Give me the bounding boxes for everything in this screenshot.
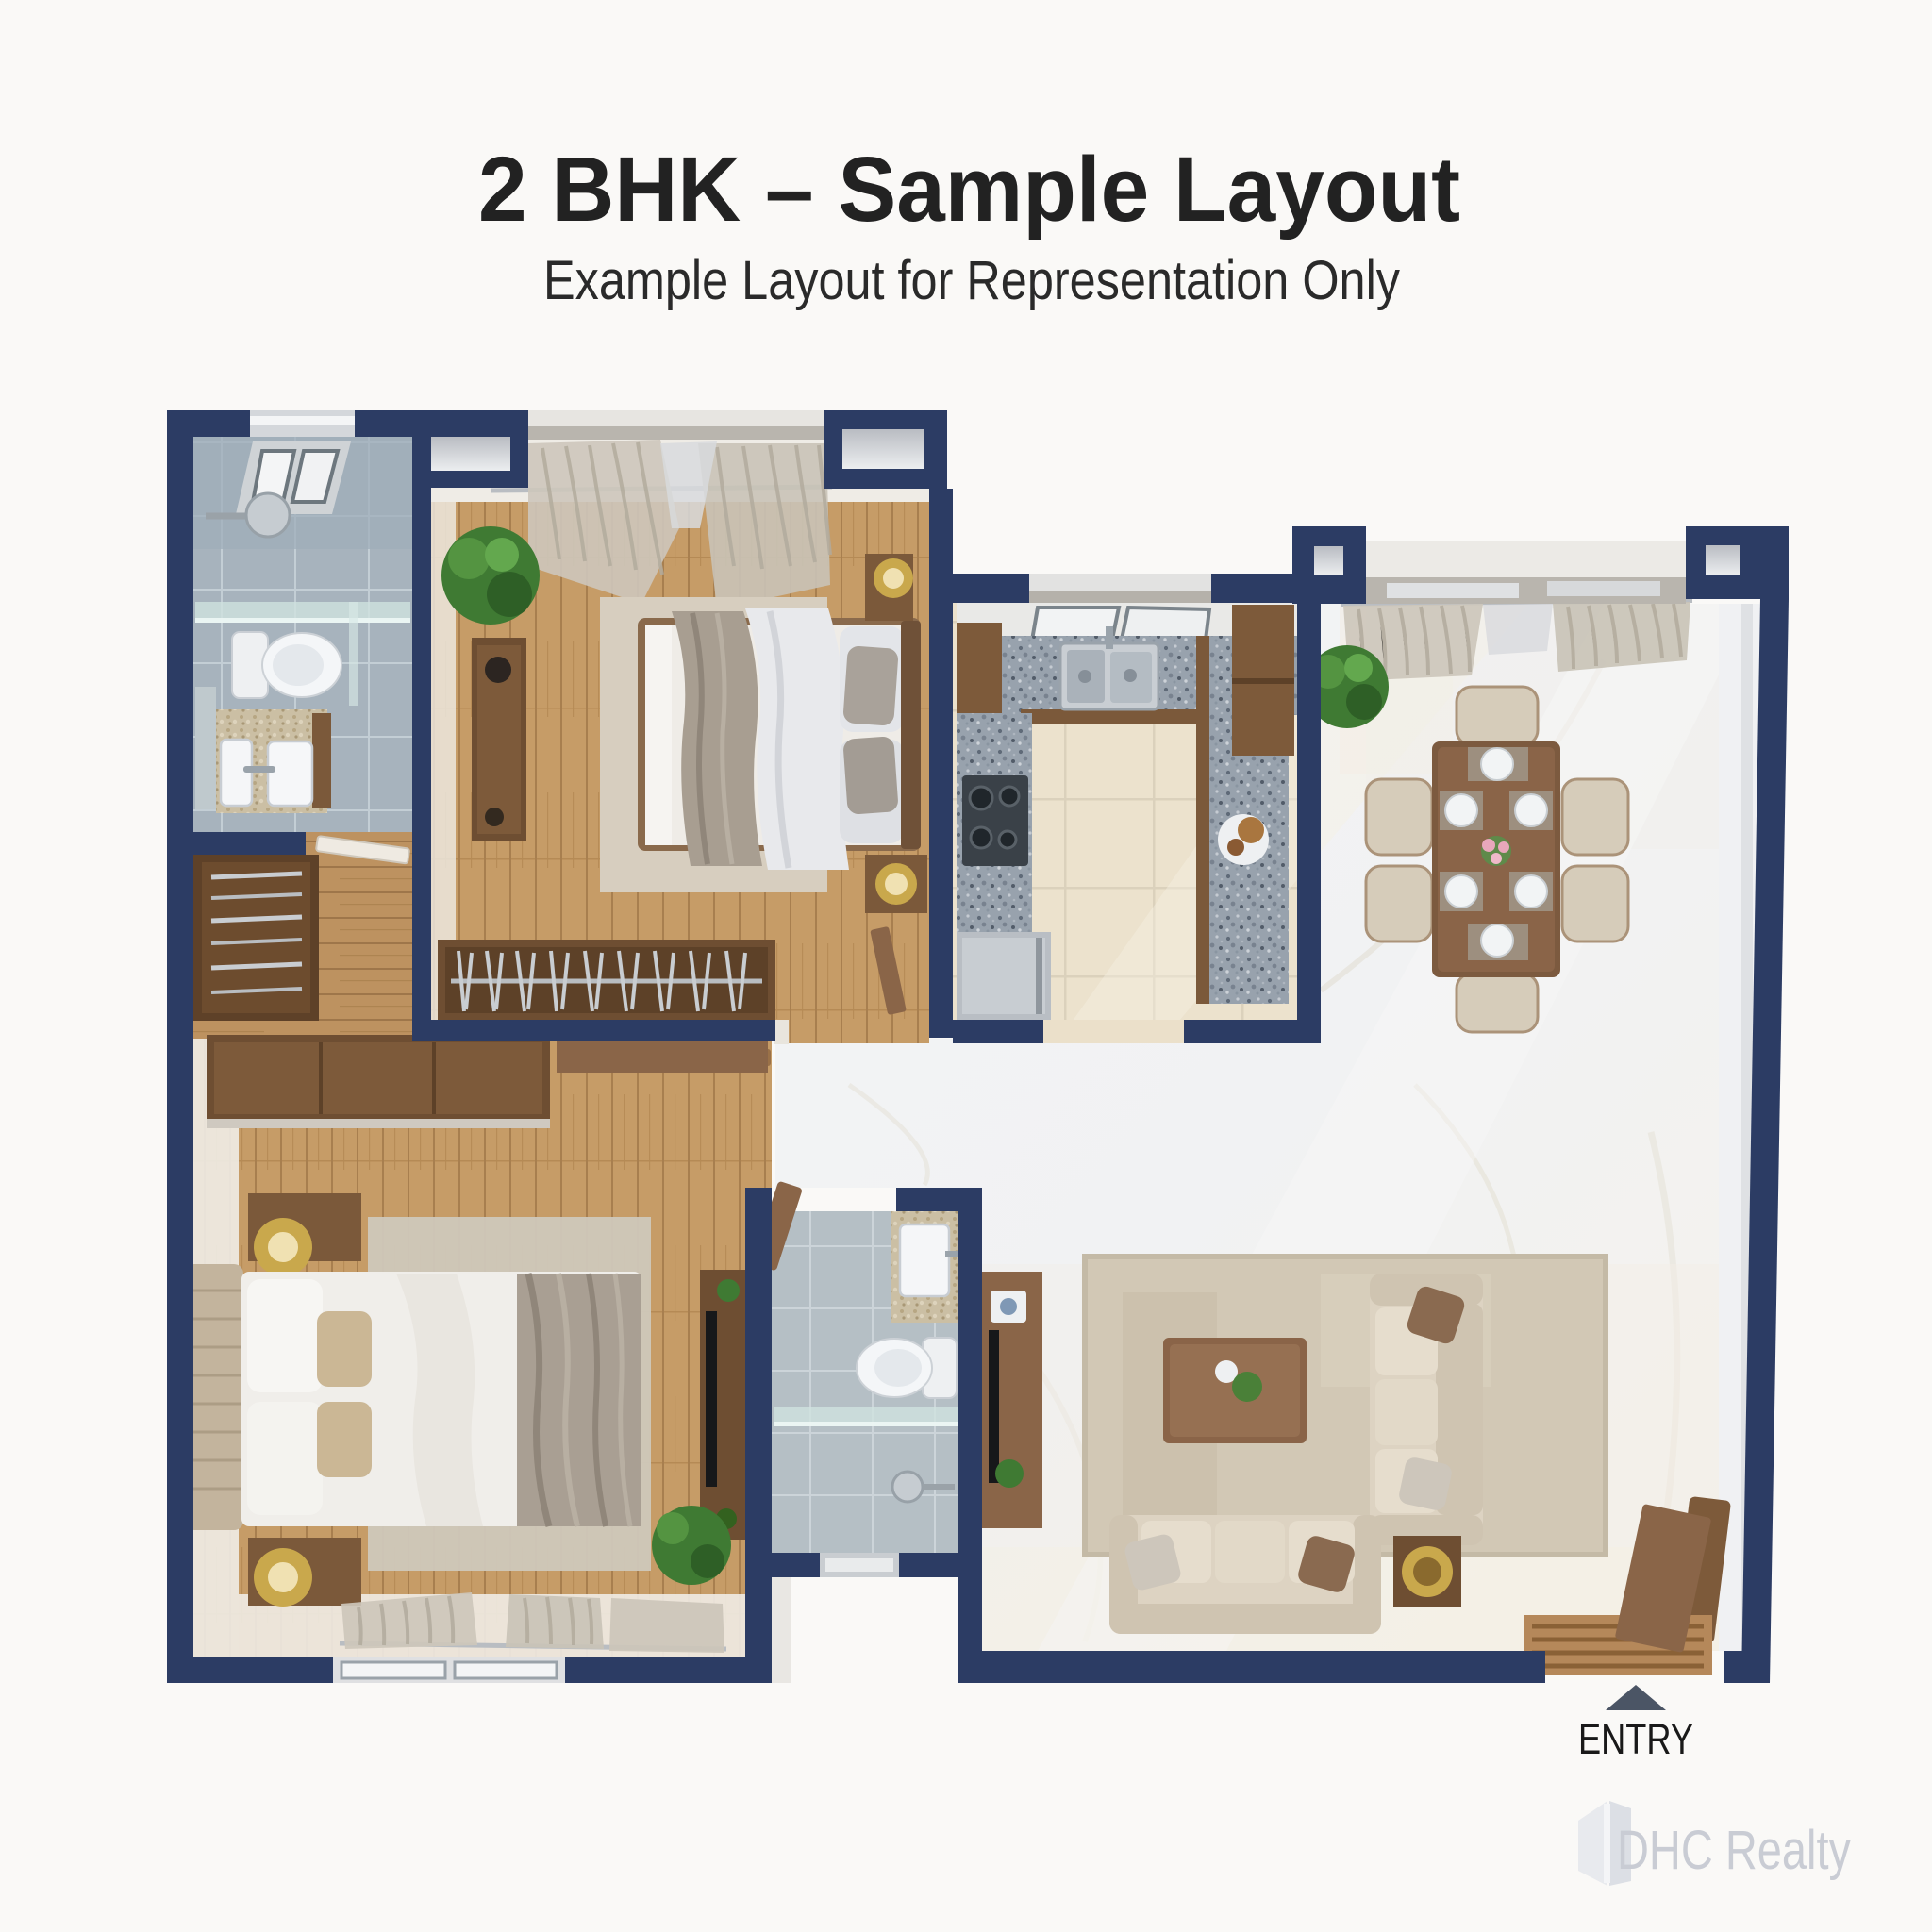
svg-text:Example Layout for Representat: Example Layout for Representation Only [543,250,1400,311]
svg-text:ENTRY: ENTRY [1578,1715,1693,1763]
svg-text:DHC Realty: DHC Realty [1617,1820,1851,1881]
svg-text:2 BHK – Sample Layout: 2 BHK – Sample Layout [478,138,1460,241]
